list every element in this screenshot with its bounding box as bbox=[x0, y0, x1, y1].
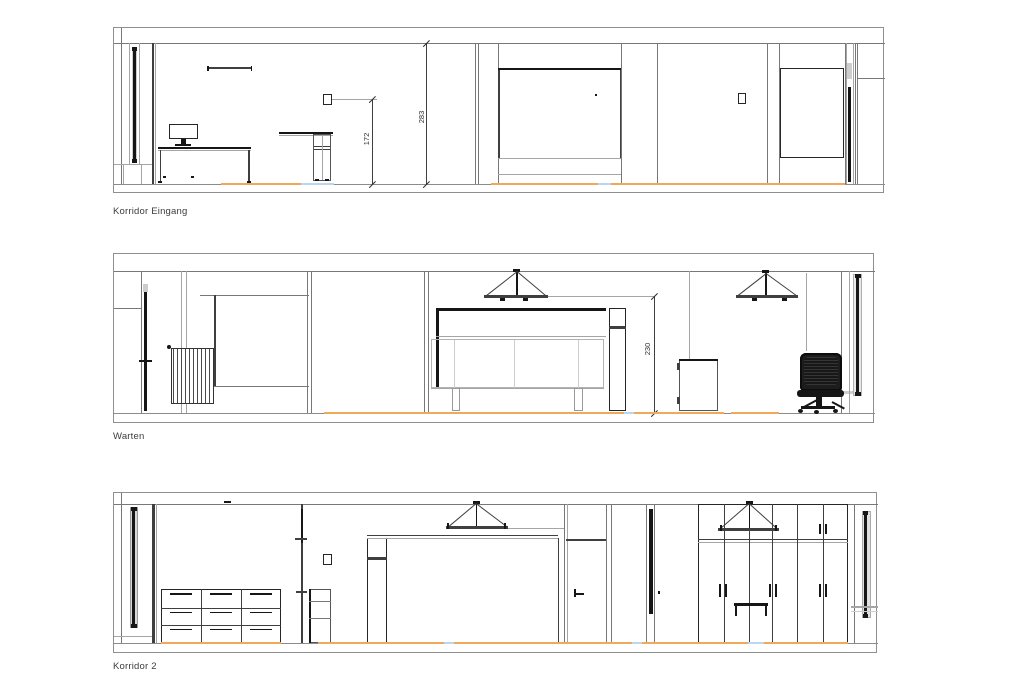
wall-column bbox=[152, 504, 155, 643]
wall-joint-line bbox=[478, 43, 479, 184]
drawer-handle bbox=[210, 612, 232, 614]
door-handle-dot bbox=[658, 591, 661, 594]
floor-finish-blue bbox=[624, 412, 634, 414]
shelf-unit-edge bbox=[309, 589, 311, 643]
opening-sill-line bbox=[498, 174, 621, 175]
wardrobe-handle bbox=[825, 524, 827, 534]
standing-desk-foot bbox=[325, 179, 329, 181]
chair-caster bbox=[814, 410, 819, 414]
skirting-band bbox=[851, 611, 878, 612]
chair-mesh bbox=[804, 357, 838, 385]
door-frame-line bbox=[654, 504, 655, 643]
counter-foot bbox=[452, 388, 460, 411]
elevation-korridor-eingang: 172 283 bbox=[113, 27, 884, 193]
door-hinge-cap bbox=[863, 511, 868, 515]
drawer-handle bbox=[250, 629, 272, 631]
tall-cabinet bbox=[367, 538, 387, 644]
floor-finish-orange bbox=[221, 183, 301, 185]
door-frame-line bbox=[854, 504, 855, 643]
panel-edge bbox=[558, 538, 559, 643]
pendant-lamp-wire bbox=[476, 503, 507, 527]
pendant-lamp-clamp bbox=[775, 525, 777, 531]
drawer-handle bbox=[170, 629, 192, 631]
door-frame-line bbox=[646, 504, 647, 643]
ceiling-line bbox=[114, 43, 885, 44]
counter-front-joint bbox=[514, 340, 515, 388]
pendant-lamp-wire bbox=[486, 271, 517, 296]
pole-bracket bbox=[296, 591, 307, 593]
floor-finish-blue bbox=[444, 642, 454, 644]
plinth-line bbox=[123, 164, 124, 184]
door-edge-bar bbox=[144, 292, 147, 411]
door-hinge-cap bbox=[131, 624, 137, 628]
sill-line bbox=[114, 164, 154, 165]
office-chair-column bbox=[816, 397, 822, 406]
wardrobe-handle bbox=[719, 584, 721, 597]
door-hinge-cap bbox=[132, 47, 138, 51]
floor-finish-orange bbox=[491, 183, 598, 185]
drawer-divider bbox=[161, 608, 281, 609]
door-hinge-cap bbox=[855, 392, 861, 396]
wall-light-cap bbox=[251, 66, 253, 71]
door-frame-line bbox=[853, 43, 854, 184]
floor-finish-blue bbox=[748, 642, 764, 644]
drawer-divider bbox=[161, 625, 281, 626]
wall-dot bbox=[595, 94, 597, 96]
opening-jamb bbox=[620, 70, 622, 158]
wall-panel bbox=[780, 68, 844, 158]
door-edge-bar bbox=[864, 513, 867, 616]
wall-light bbox=[208, 67, 251, 69]
drawer-divider bbox=[241, 589, 242, 643]
chair-caster bbox=[833, 409, 838, 413]
door-hinge-cap bbox=[131, 507, 137, 511]
drawer-divider bbox=[201, 589, 202, 643]
door-handle bbox=[574, 593, 584, 595]
door-edge-bar bbox=[649, 509, 653, 614]
wall-joint-line bbox=[689, 271, 690, 359]
wardrobe-handle bbox=[819, 524, 821, 534]
door-closer bbox=[847, 63, 852, 79]
pendant-lamp-wire bbox=[737, 273, 766, 296]
wall-light-cap bbox=[207, 66, 209, 71]
counter-front-joint bbox=[578, 340, 579, 388]
door-edge-bar bbox=[848, 87, 851, 182]
floor-finish-orange bbox=[764, 642, 848, 644]
dim-text-172: 172 bbox=[362, 124, 372, 154]
shelf-line bbox=[309, 601, 331, 602]
wall-joint-line bbox=[307, 271, 308, 413]
floor-finish-orange bbox=[731, 412, 779, 414]
panel-line bbox=[214, 386, 309, 387]
door-frame-line bbox=[129, 43, 130, 164]
elevation-warten: 230 bbox=[113, 253, 874, 423]
radiator-valve bbox=[167, 345, 171, 349]
bench-top bbox=[734, 603, 768, 606]
pendant-lamp-bar bbox=[446, 526, 508, 529]
floor-finish-orange bbox=[611, 183, 845, 185]
floor-dot bbox=[191, 176, 194, 178]
radiator bbox=[171, 348, 214, 404]
pendant-lamp-clamp bbox=[447, 523, 449, 529]
pendant-lamp-wire bbox=[448, 503, 476, 527]
drawer-handle bbox=[210, 629, 232, 631]
drawing-sheet: 172 283 Korridor Eingang bbox=[0, 0, 1024, 683]
wall-joint-line bbox=[121, 493, 122, 643]
panel-line bbox=[200, 295, 309, 296]
pendant-lamp-stem bbox=[749, 503, 751, 528]
wardrobe-handle bbox=[819, 584, 821, 597]
floor-finish-blue bbox=[301, 183, 334, 185]
pendant-lamp-clamp bbox=[752, 298, 757, 301]
floor-finish-orange bbox=[161, 642, 281, 644]
pendant-lamp-bar bbox=[736, 295, 798, 298]
floor-finish-blue bbox=[598, 183, 611, 185]
panel-top-line bbox=[367, 538, 558, 539]
dim-text-230: 230 bbox=[643, 334, 653, 364]
wall-column bbox=[152, 43, 154, 184]
door-frame-line bbox=[849, 271, 850, 413]
sill-line bbox=[114, 636, 154, 637]
desk-top-edge bbox=[158, 150, 251, 151]
panel-edge bbox=[214, 295, 216, 386]
wall-joint-line bbox=[767, 43, 768, 184]
bench-leg bbox=[765, 606, 767, 616]
door-frame-line bbox=[611, 504, 612, 643]
wardrobe-handle bbox=[769, 584, 771, 597]
cabinet-band bbox=[609, 326, 626, 329]
ceiling-line bbox=[114, 271, 875, 272]
dim-line-172 bbox=[372, 99, 373, 184]
pendant-lamp-bar bbox=[484, 295, 548, 298]
wall-joint-line bbox=[657, 43, 658, 184]
standing-desk-detail bbox=[322, 135, 323, 180]
standing-desk-foot bbox=[315, 179, 319, 181]
counter-top bbox=[436, 308, 606, 311]
door-frame-line bbox=[567, 504, 568, 643]
floor-finish-orange bbox=[634, 412, 724, 414]
dim-extension-line bbox=[548, 296, 654, 297]
elevation-korridor-2 bbox=[113, 492, 877, 653]
pendant-lamp-wire bbox=[517, 271, 547, 296]
drawer-handle bbox=[170, 612, 192, 614]
wardrobe-divider bbox=[797, 504, 798, 644]
side-cabinet-top bbox=[679, 359, 718, 361]
rail-line bbox=[508, 528, 564, 529]
drawer-handle bbox=[170, 593, 192, 595]
pendant-lamp-clamp bbox=[504, 523, 506, 529]
skirting-band bbox=[851, 606, 878, 608]
door-edge-bar bbox=[856, 276, 859, 394]
wall-joint-line bbox=[475, 43, 476, 184]
cabinet-band bbox=[367, 557, 387, 560]
door-edge-bar bbox=[133, 50, 136, 160]
pole-bracket bbox=[295, 538, 307, 540]
door-frame-line bbox=[141, 271, 142, 413]
counter-front-joint bbox=[454, 340, 455, 388]
door-frame-line bbox=[855, 43, 856, 184]
floor-finish-orange bbox=[318, 642, 444, 644]
door-frame-line bbox=[564, 504, 565, 643]
pendant-lamp-bar bbox=[718, 528, 779, 531]
wall-joint-line bbox=[621, 43, 622, 184]
open-shelf-unit bbox=[309, 589, 331, 643]
wall-line bbox=[114, 308, 141, 309]
elevation-title: Korridor 2 bbox=[113, 661, 157, 672]
wall-joint-line bbox=[121, 28, 122, 184]
dim-line-230 bbox=[654, 296, 655, 413]
wall-joint-line bbox=[428, 271, 429, 413]
pendant-lamp-stem bbox=[516, 271, 518, 295]
door-hinge-cap bbox=[855, 274, 861, 278]
plinth-line bbox=[141, 164, 142, 184]
pendant-lamp-stem bbox=[476, 503, 478, 528]
cabinet-hinge bbox=[677, 397, 680, 404]
door-frame-line bbox=[139, 43, 140, 164]
wall-joint-line bbox=[857, 43, 858, 184]
door-head-line bbox=[566, 539, 606, 541]
dim-text-283: 283 bbox=[417, 102, 427, 132]
wardrobe-handle bbox=[825, 584, 827, 597]
desk-leg bbox=[160, 150, 162, 182]
monitor-base bbox=[175, 144, 191, 146]
floor-dot bbox=[163, 176, 166, 178]
door-handle bbox=[139, 360, 152, 362]
ceiling-detector bbox=[224, 501, 231, 503]
door-closer bbox=[143, 284, 148, 292]
door-hinge-cap bbox=[132, 159, 138, 163]
pendant-lamp-clamp bbox=[500, 298, 505, 301]
wall-column-line bbox=[156, 504, 157, 643]
desk-foot bbox=[158, 181, 162, 183]
side-cabinet bbox=[679, 359, 718, 411]
wall-joint-line bbox=[311, 271, 312, 413]
office-chair-backrest bbox=[800, 353, 842, 391]
opening-sill-line bbox=[498, 158, 621, 159]
floor-finish-orange bbox=[642, 642, 748, 644]
shelf-line bbox=[857, 78, 885, 79]
drawer-handle bbox=[250, 612, 272, 614]
drawer-handle bbox=[210, 593, 232, 595]
chair-caster bbox=[798, 409, 803, 413]
counter-line bbox=[436, 336, 606, 337]
shelf-line bbox=[309, 618, 331, 619]
drawer-unit bbox=[161, 589, 281, 643]
desk-leg bbox=[248, 150, 250, 182]
wall-socket bbox=[323, 554, 332, 565]
pendant-lamp-wire bbox=[766, 273, 797, 296]
panel-top-line bbox=[367, 535, 558, 536]
pendant-lamp-clamp bbox=[720, 525, 722, 531]
wardrobe-handle bbox=[725, 584, 727, 597]
wardrobe-handle bbox=[775, 584, 777, 597]
floor-finish-blue bbox=[632, 642, 642, 644]
pendant-lamp-clamp bbox=[523, 298, 528, 301]
floor-finish-orange bbox=[324, 412, 624, 414]
opening-head-line bbox=[498, 68, 621, 70]
door-hinge-cap bbox=[863, 614, 868, 618]
monitor bbox=[169, 124, 198, 139]
wall-joint-line bbox=[806, 273, 807, 351]
drawer-handle bbox=[250, 593, 272, 595]
wardrobe-divider bbox=[698, 542, 848, 543]
bench-leg bbox=[735, 606, 737, 616]
counter-foot bbox=[574, 388, 583, 411]
opening-jamb bbox=[498, 70, 500, 158]
pendant-lamp-clamp bbox=[782, 298, 787, 301]
wall-joint-line bbox=[424, 271, 425, 413]
counter-tall-cabinet bbox=[609, 308, 626, 411]
wall-socket bbox=[738, 93, 746, 104]
office-chair-seat bbox=[797, 390, 844, 397]
floor-finish-orange bbox=[454, 642, 632, 644]
door-edge-bar bbox=[132, 509, 135, 626]
cabinet-hinge bbox=[677, 363, 680, 370]
wall-column-line bbox=[155, 43, 156, 184]
elevation-title: Korridor Eingang bbox=[113, 206, 188, 217]
wall-socket bbox=[323, 94, 332, 105]
elevation-title: Warten bbox=[113, 431, 144, 442]
wardrobe-divider bbox=[698, 539, 848, 540]
pendant-lamp-stem bbox=[765, 273, 767, 295]
door-frame-line bbox=[606, 504, 607, 643]
